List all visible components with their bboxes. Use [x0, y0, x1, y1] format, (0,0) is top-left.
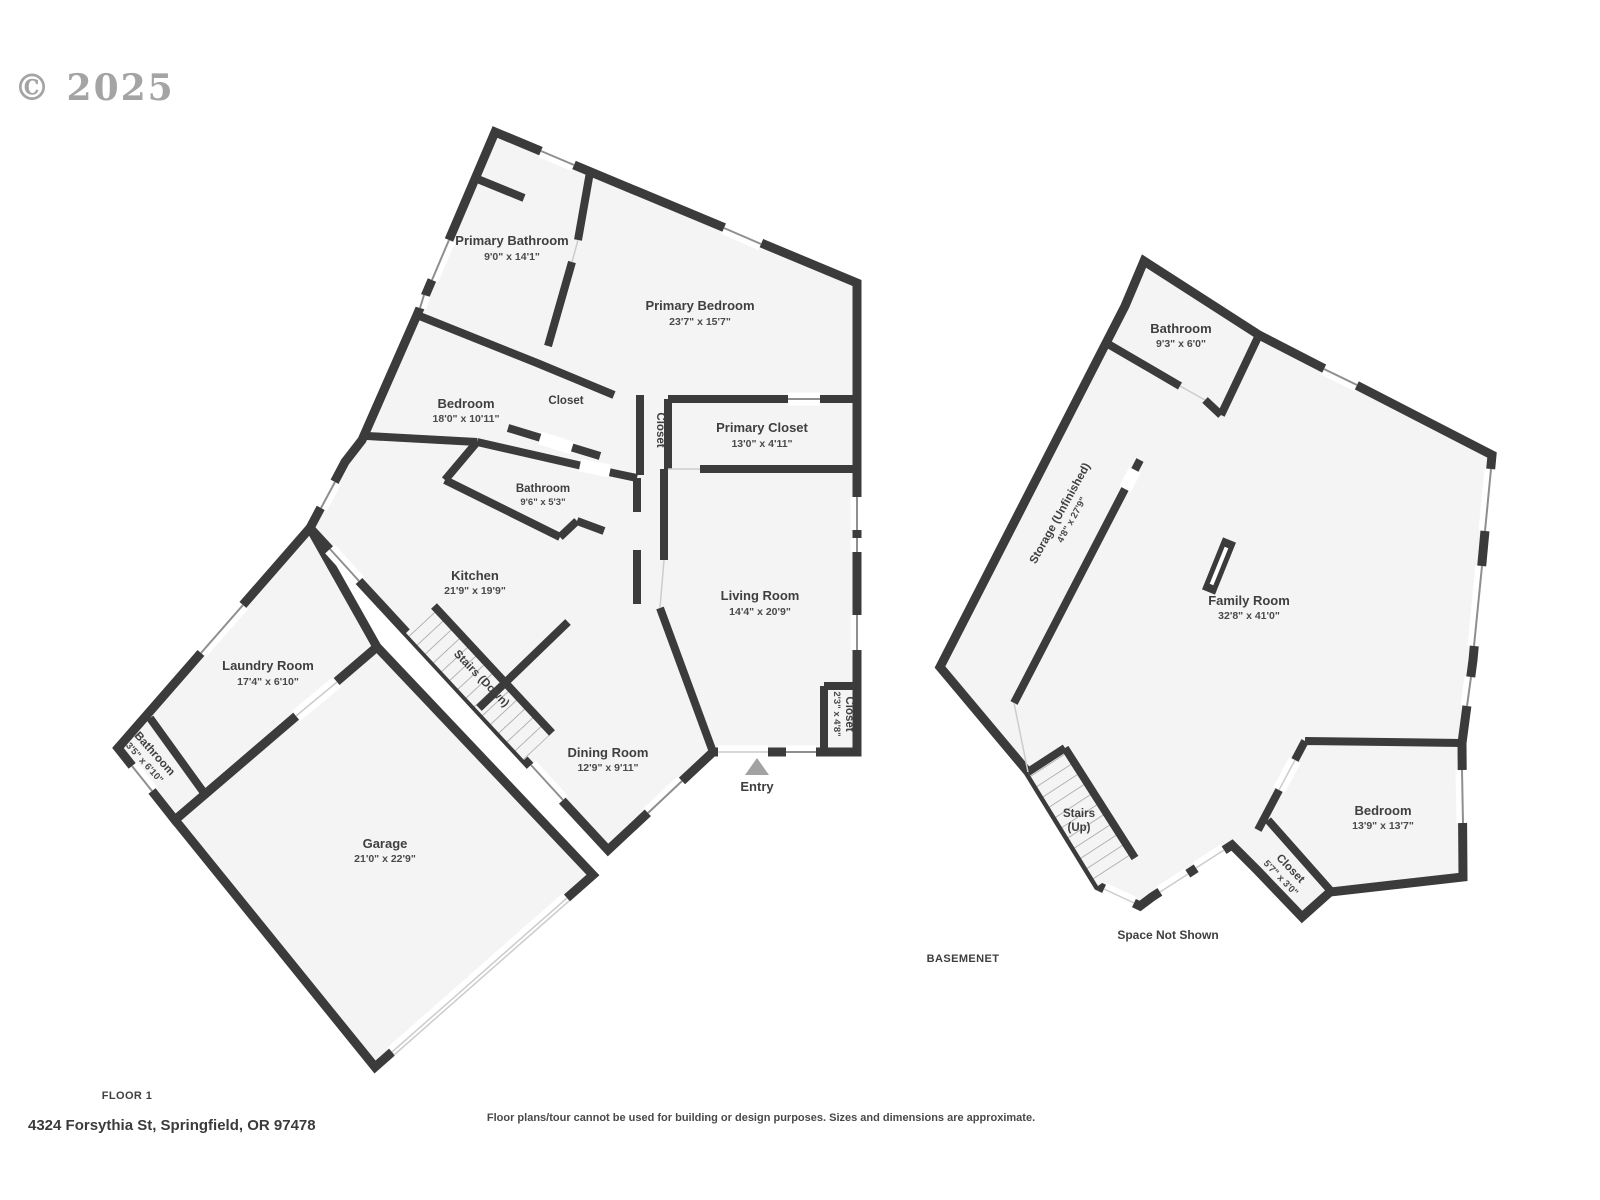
room-label-stairs-up: Stairs	[1063, 808, 1095, 820]
entry-label: Entry	[740, 779, 774, 794]
floor-plan-canvas: © 2025 Primary Bathroom 9'0" x 14'1" Pri…	[0, 0, 1600, 1200]
room-dims-bedroom: 18'0" x 10'11"	[433, 413, 500, 425]
room-label-closet-corridor: Closet	[654, 412, 666, 447]
room-label-family-room: Family Room	[1208, 593, 1290, 608]
entry-marker-icon	[745, 758, 769, 775]
room-label-basement-bathroom: Bathroom	[1150, 321, 1211, 336]
room-dims-closet-entry: 2'3" x 4'8"	[831, 691, 842, 736]
room-label-garage: Garage	[363, 836, 408, 851]
room-label-closet-hall: Closet	[548, 395, 583, 407]
room-dims-kitchen: 21'9" x 19'9"	[444, 585, 506, 597]
room-label-primary-closet: Primary Closet	[716, 420, 808, 435]
room-label-bathroom: Bathroom	[516, 483, 570, 495]
space-not-shown-note: Space Not Shown	[1117, 928, 1218, 942]
room-label-kitchen: Kitchen	[451, 568, 499, 583]
room-label-primary-bathroom: Primary Bathroom	[455, 233, 568, 248]
basement-plan: Bathroom 9'3" x 6'0" Storage (Unfinished…	[927, 261, 1492, 965]
room-dims-primary-bedroom: 23'7" x 15'7"	[669, 316, 731, 328]
room-dims-garage: 21'0" x 22'9"	[354, 853, 416, 865]
room-dims-basement-bathroom: 9'3" x 6'0"	[1156, 338, 1206, 350]
room-label-laundry-room: Laundry Room	[222, 658, 314, 673]
room-dims-bathroom: 9'6" x 5'3"	[520, 497, 565, 508]
room-dims-family-room: 32'8" x 41'0"	[1218, 610, 1280, 622]
copyright-watermark: © 2025	[14, 67, 175, 109]
room-label-bedroom: Bedroom	[437, 396, 494, 411]
room-label-stairs-up-sub: (Up)	[1068, 822, 1091, 834]
room-label-primary-bedroom: Primary Bedroom	[645, 298, 754, 313]
room-dims-dining-room: 12'9" x 9'11"	[577, 762, 638, 774]
room-dims-primary-bathroom: 9'0" x 14'1"	[484, 251, 540, 263]
room-dims-laundry-room: 17'4" x 6'10"	[237, 676, 299, 688]
room-dims-primary-closet: 13'0" x 4'11"	[731, 438, 792, 450]
room-label-closet-entry: Closet	[843, 696, 855, 731]
property-address: 4324 Forsythia St, Springfield, OR 97478	[28, 1117, 316, 1134]
disclaimer-text: Floor plans/tour cannot be used for buil…	[487, 1112, 1035, 1124]
room-label-dining-room: Dining Room	[568, 745, 649, 760]
floor1-plan: Primary Bathroom 9'0" x 14'1" Primary Be…	[118, 132, 857, 1067]
room-label-basement-bedroom: Bedroom	[1354, 803, 1411, 818]
room-dims-living-room: 14'4" x 20'9"	[729, 606, 791, 618]
floor1-title: FLOOR 1	[102, 1090, 152, 1102]
floor-plan-page: © 2025 Primary Bathroom 9'0" x 14'1" Pri…	[0, 0, 1600, 1200]
basement-title: BASEMENET	[927, 953, 1000, 965]
room-label-living-room: Living Room	[721, 588, 800, 603]
room-dims-basement-bedroom: 13'9" x 13'7"	[1352, 820, 1414, 832]
